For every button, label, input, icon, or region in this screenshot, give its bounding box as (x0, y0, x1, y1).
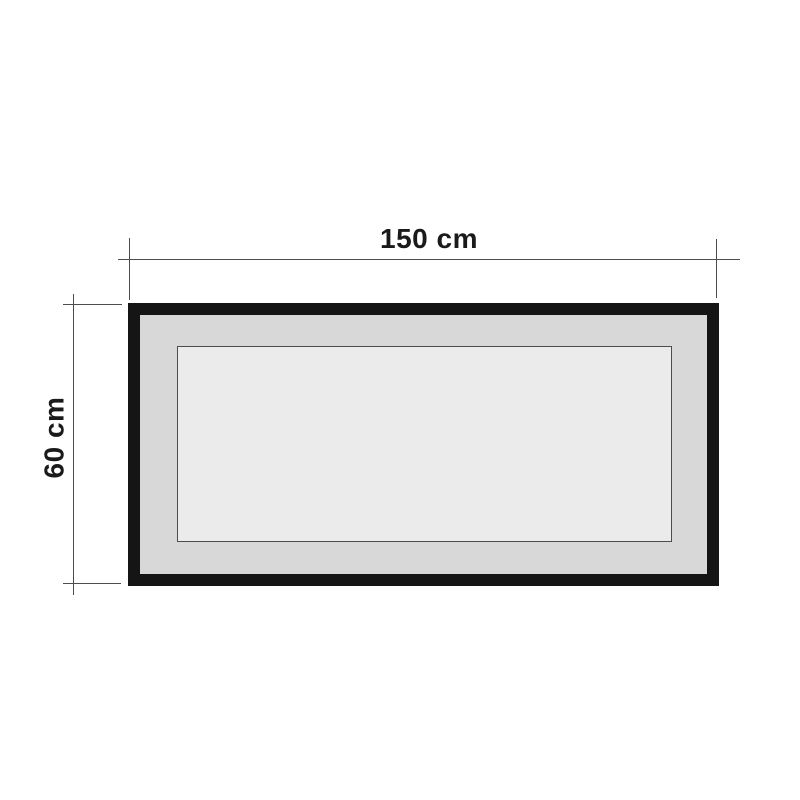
height-extension-line-bottom (63, 583, 121, 584)
height-dimension-line (73, 294, 74, 595)
width-dimension-label: 150 cm (118, 224, 740, 253)
height-dimension-label: 60 cm (40, 368, 69, 508)
panel-frame (128, 303, 719, 586)
panel-mat (140, 315, 707, 574)
panel-inner-surface (177, 346, 672, 542)
height-extension-line-top (63, 304, 122, 305)
width-dimension-line (118, 259, 740, 260)
dimension-diagram: 150 cm 60 cm (0, 0, 800, 800)
